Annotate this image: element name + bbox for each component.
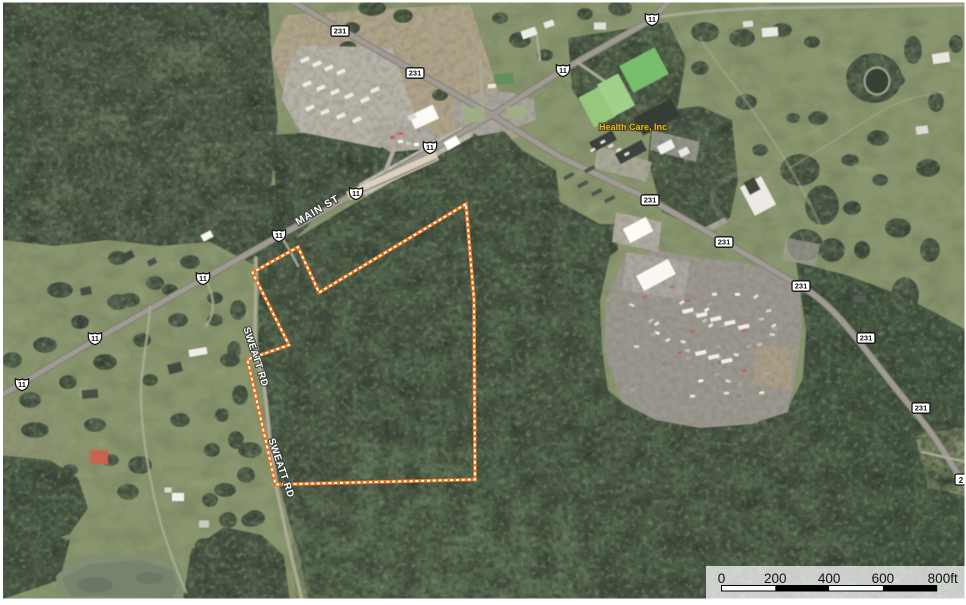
svg-text:200: 200 — [764, 571, 787, 586]
svg-text:600: 600 — [872, 571, 895, 586]
svg-text:Health Care, Inc: Health Care, Inc — [599, 122, 667, 132]
svg-text:0: 0 — [718, 571, 726, 586]
svg-text:400: 400 — [818, 571, 841, 586]
svg-text:2: 2 — [959, 476, 964, 485]
svg-text:800ft: 800ft — [928, 571, 958, 586]
